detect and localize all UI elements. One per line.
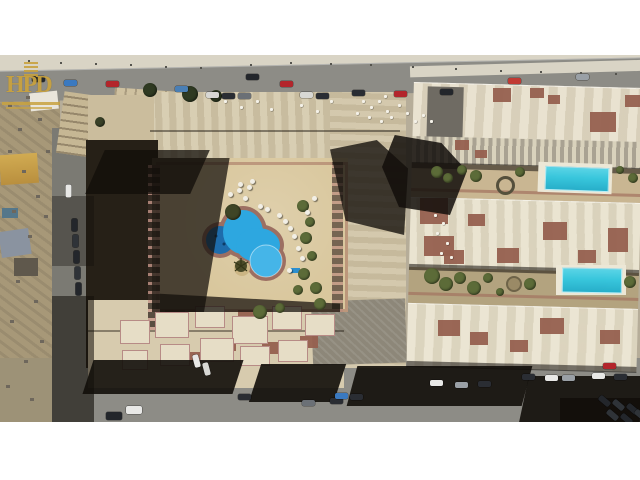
logo-tagline-bar	[6, 107, 52, 109]
neighbouring-building-rows	[406, 78, 640, 384]
street-shadow	[52, 296, 94, 422]
shack	[14, 258, 38, 276]
circular-garden-feature	[506, 276, 522, 292]
parapet-line	[88, 330, 344, 332]
yellow-structure	[0, 153, 39, 186]
road-shadow	[82, 360, 243, 394]
shack	[0, 228, 32, 258]
street-shadow	[52, 196, 94, 266]
aerial-photo-screenshot: HPD	[0, 0, 640, 480]
blue-pool-mat	[290, 268, 300, 273]
blue-tarp	[2, 208, 18, 218]
circular-garden-feature	[496, 176, 515, 195]
road-shadow	[347, 366, 533, 406]
rectangular-pool-1	[545, 166, 610, 192]
building-shadow	[85, 150, 210, 194]
road-shadow	[249, 364, 346, 402]
road-shadow	[560, 398, 640, 422]
letterbox-bottom	[0, 422, 640, 480]
gray-roof-patch	[426, 86, 463, 139]
developer-watermark-logo: HPD	[2, 58, 72, 114]
logo-tagline-bar	[2, 102, 60, 105]
letterbox-top	[0, 0, 640, 55]
parapet-line	[150, 130, 400, 132]
logo-monogram: HPD	[6, 72, 51, 99]
rectangular-pool-2	[562, 267, 622, 293]
